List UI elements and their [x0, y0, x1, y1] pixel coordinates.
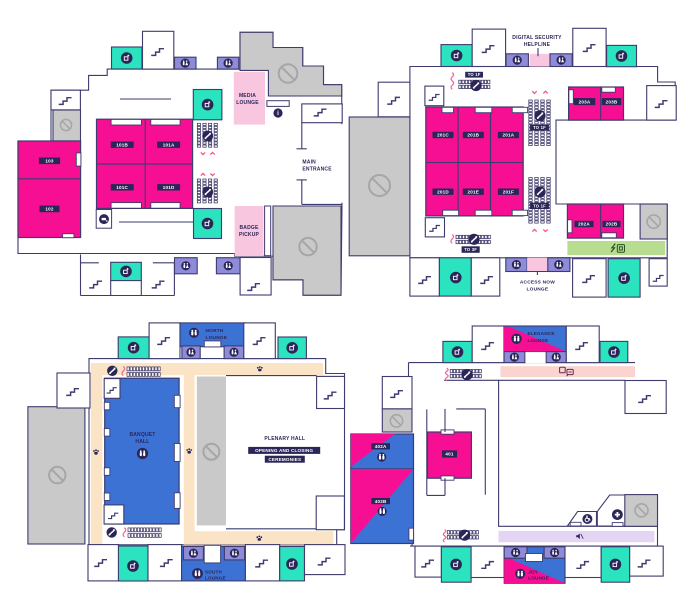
- svg-text:LOUNGE: LOUNGE: [205, 576, 226, 581]
- svg-text:201C: 201C: [437, 133, 449, 138]
- svg-text:LOUNGE: LOUNGE: [528, 576, 549, 581]
- svg-text:MEDIA: MEDIA: [239, 93, 256, 99]
- svg-text:203B: 203B: [606, 99, 618, 104]
- svg-text:TO 1F: TO 1F: [533, 125, 546, 130]
- svg-text:ACCESS NOW: ACCESS NOW: [520, 280, 555, 286]
- svg-text:101A: 101A: [163, 142, 175, 147]
- svg-text:101C: 101C: [116, 185, 128, 190]
- svg-text:JOY: JOY: [528, 570, 538, 575]
- svg-text:BADGE: BADGE: [239, 225, 259, 231]
- svg-text:101D: 101D: [163, 185, 175, 190]
- svg-text:202A: 202A: [578, 222, 590, 227]
- svg-text:LOUNGE: LOUNGE: [236, 100, 259, 106]
- svg-text:TO 1F: TO 1F: [533, 203, 546, 208]
- svg-text:ELEGANCE: ELEGANCE: [528, 331, 555, 336]
- svg-text:OPENING AND CLOSING: OPENING AND CLOSING: [255, 448, 313, 453]
- svg-text:NORTH: NORTH: [206, 328, 224, 334]
- svg-text:TO 3F: TO 3F: [464, 247, 477, 252]
- svg-text:SOUTH: SOUTH: [205, 570, 223, 575]
- svg-text:101B: 101B: [116, 142, 128, 147]
- svg-text:201A: 201A: [503, 133, 515, 138]
- svg-text:201D: 201D: [437, 189, 449, 194]
- svg-text:103: 103: [45, 158, 54, 163]
- svg-text:PICKUP: PICKUP: [239, 232, 260, 238]
- svg-text:i: i: [277, 110, 279, 117]
- svg-text:402B: 402B: [375, 499, 387, 504]
- svg-text:LOUNGE: LOUNGE: [206, 335, 228, 341]
- svg-text:ENTRANCE: ENTRANCE: [302, 166, 332, 172]
- svg-text:401: 401: [445, 452, 454, 457]
- svg-text:402A: 402A: [375, 444, 387, 449]
- svg-text:CEREMONIES: CEREMONIES: [268, 457, 301, 462]
- svg-text:BANQUET: BANQUET: [129, 432, 155, 438]
- svg-text:201E: 201E: [468, 189, 480, 194]
- svg-text:MAIN: MAIN: [302, 159, 316, 165]
- svg-text:LOUNGE: LOUNGE: [527, 287, 549, 293]
- svg-text:PLENARY HALL: PLENARY HALL: [264, 436, 305, 442]
- svg-text:LOUNGE: LOUNGE: [528, 338, 549, 343]
- svg-text:DIGITAL SECURITY: DIGITAL SECURITY: [512, 35, 562, 41]
- svg-text:HALL: HALL: [135, 439, 149, 445]
- svg-text:102: 102: [45, 207, 54, 212]
- svg-text:201F: 201F: [503, 189, 514, 194]
- svg-text:203A: 203A: [579, 99, 591, 104]
- svg-text:TO 1F: TO 1F: [468, 72, 481, 77]
- svg-text:201B: 201B: [467, 133, 479, 138]
- svg-text:202B: 202B: [606, 222, 618, 227]
- svg-text:HELPLINE: HELPLINE: [524, 42, 551, 48]
